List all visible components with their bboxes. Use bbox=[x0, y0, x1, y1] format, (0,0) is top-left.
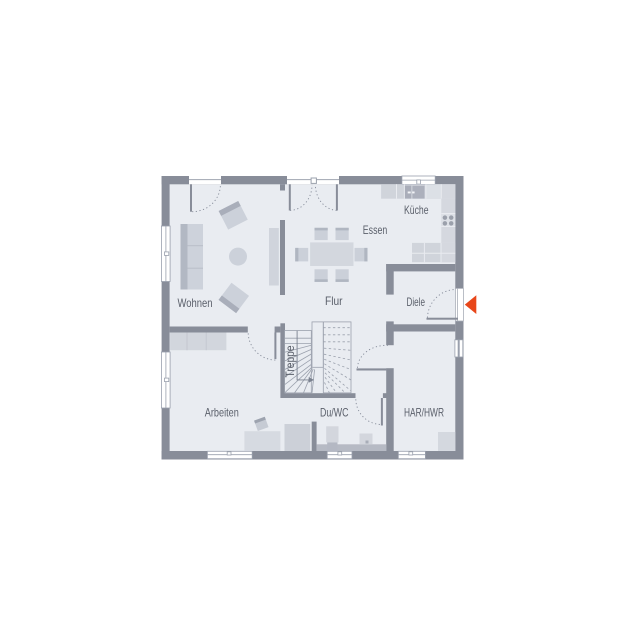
svg-text:HAR/HWR: HAR/HWR bbox=[404, 406, 444, 420]
svg-text:Küche: Küche bbox=[404, 203, 429, 217]
svg-text:Treppe: Treppe bbox=[283, 345, 297, 377]
svg-text:Arbeiten: Arbeiten bbox=[205, 406, 239, 420]
svg-text:Du/WC: Du/WC bbox=[320, 406, 349, 420]
svg-text:Flur: Flur bbox=[325, 294, 343, 308]
svg-text:Diele: Diele bbox=[407, 295, 426, 309]
svg-text:Essen: Essen bbox=[363, 223, 388, 237]
svg-text:Wohnen: Wohnen bbox=[178, 296, 213, 310]
